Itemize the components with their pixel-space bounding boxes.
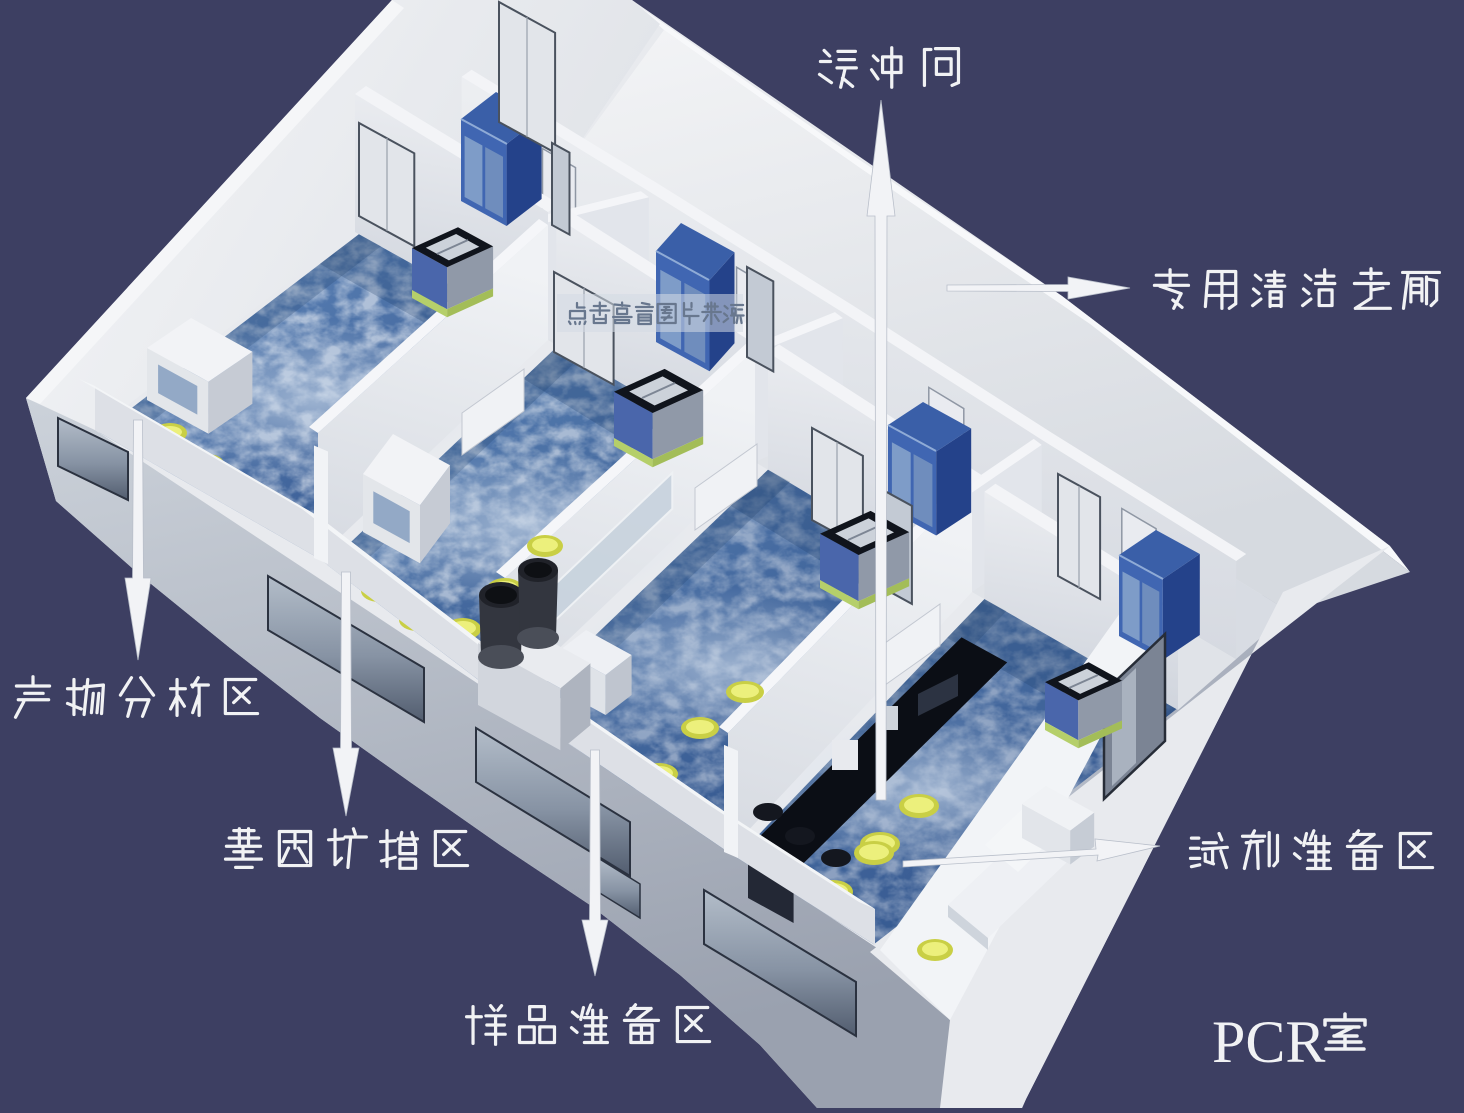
- svg-text:PCR: PCR: [1212, 1009, 1325, 1075]
